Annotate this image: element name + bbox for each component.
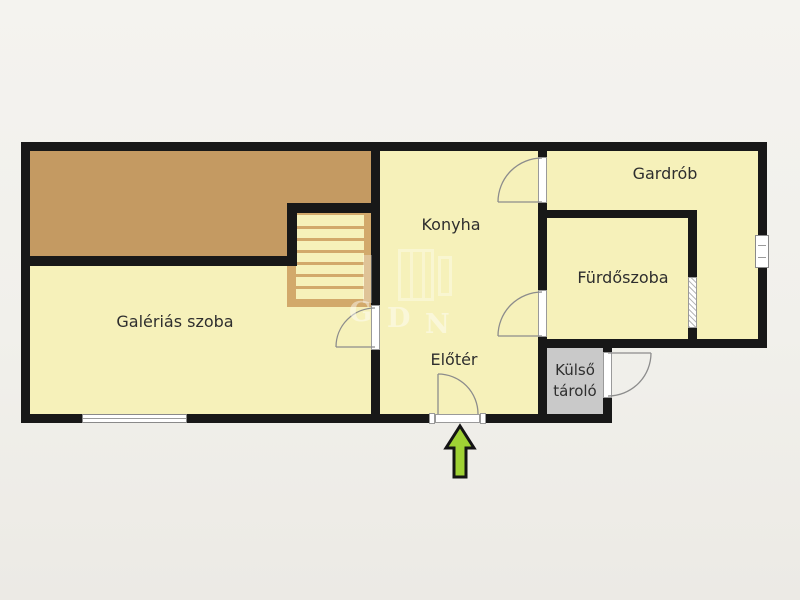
room-label-furdoszoba: Fürdőszoba (558, 268, 688, 288)
door-arc-eloter-furdo (498, 292, 542, 336)
room-label-gardrob: Gardrób (610, 164, 720, 184)
entrance-arrow-icon (446, 426, 474, 477)
room-label-konyha: Konyha (396, 215, 506, 235)
door-arc-galerias (336, 308, 375, 347)
doors-overlay (0, 0, 800, 600)
room-label-kulso-line2: tároló (545, 381, 605, 402)
door-arc-kulso-tarolo (608, 353, 651, 396)
room-label-eloter: Előtér (399, 350, 509, 370)
door-arc-entrance (438, 374, 478, 414)
room-label-galerias: Galériás szoba (95, 312, 255, 332)
room-label-kulso-line1: Külső (545, 360, 605, 381)
room-label-kulso-tarolo: Külső tároló (545, 360, 605, 402)
door-arc-konyha-gardrob (498, 158, 542, 202)
